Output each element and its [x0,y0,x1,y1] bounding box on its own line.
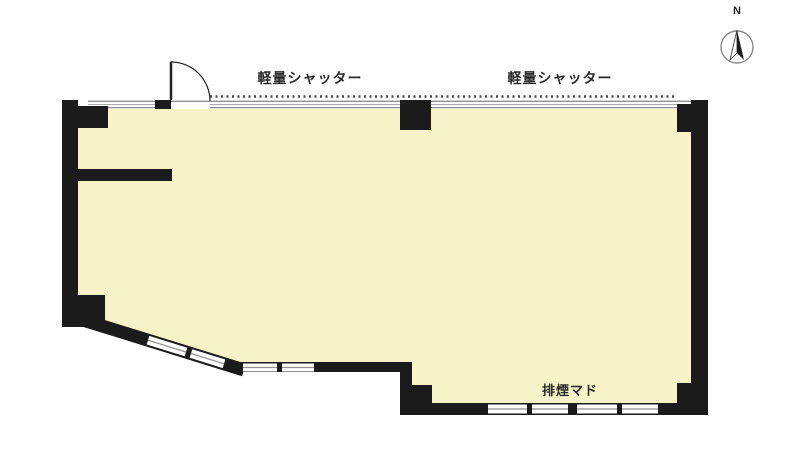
entrance-door [171,62,210,101]
label-smoke-window: 排煙マド [505,384,635,397]
top-wall-segment [155,100,171,109]
top-middle-column [400,100,431,130]
step-wall-vertical [400,362,412,410]
top-right-column [677,104,708,132]
interior-wall-stub [66,169,172,181]
label-shutter-left: 軽量シャッター [240,71,380,85]
floor-plan-canvas: 軽量シャッター 軽量シャッター 排煙マド N [0,0,800,468]
door-swing-arc [171,62,210,101]
north-compass [721,30,753,63]
compass-needle-left [730,30,737,60]
compass-needle-right [737,30,744,60]
top-left-column [62,106,108,128]
left-wall [62,100,78,312]
right-wall [691,100,708,415]
label-shutter-right: 軽量シャッター [490,71,630,85]
label-compass-north: N [729,6,745,17]
floor-plan-drawing [0,0,800,468]
